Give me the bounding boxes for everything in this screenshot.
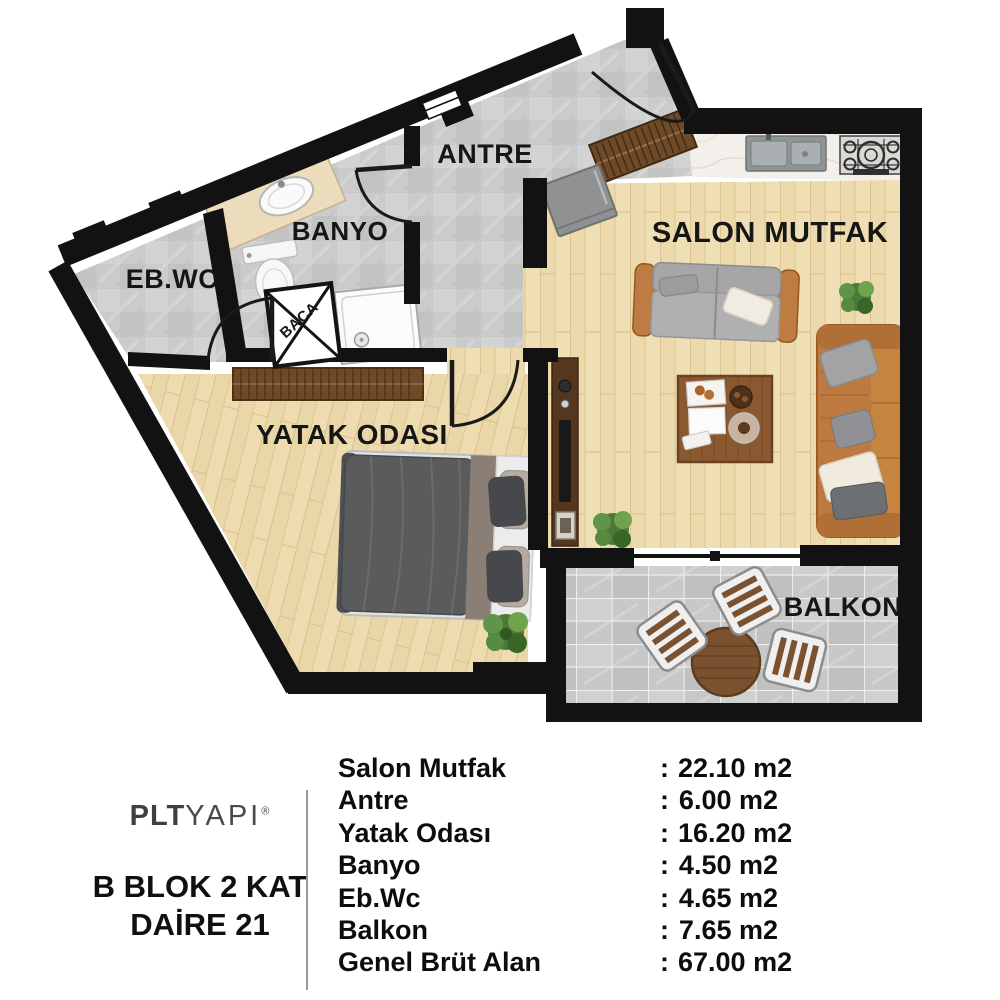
door-gap-wood-floor	[447, 348, 525, 374]
plant	[593, 511, 632, 548]
room-label-salon-mutfak: SALON MUTFAK	[652, 217, 888, 249]
room-label-yatak-odasi: YATAK ODASI	[256, 419, 448, 450]
bowl	[730, 386, 752, 408]
area-value: 67.00 m2	[678, 947, 778, 978]
area-value: 4.65 m2	[678, 883, 778, 914]
area-room-name: Eb.Wc	[338, 883, 660, 914]
legend: PLTYAPI® B BLOK 2 KAT DAİRE 21 Salon Mut…	[0, 740, 1000, 1000]
kitchen-sink	[746, 130, 826, 171]
room-label-eb-wc: EB.WC	[126, 264, 219, 294]
brand-bold: PLT	[130, 800, 186, 832]
tv	[559, 420, 571, 502]
area-row: Yatak Odası:16.20 m2	[338, 818, 798, 850]
area-row: Banyo:4.50 m2	[338, 850, 798, 882]
sofa-leather	[817, 325, 905, 537]
area-row: Eb.Wc:4.65 m2	[338, 883, 798, 915]
area-room-name: Balkon	[338, 915, 660, 946]
plant	[483, 612, 528, 653]
stove	[840, 136, 902, 175]
brand-light: YAPI	[185, 800, 261, 832]
room-label-antre: ANTRE	[437, 139, 533, 169]
area-row: Balkon:7.65 m2	[338, 915, 798, 947]
sofa-two-seat	[633, 261, 800, 342]
area-row: Antre:6.00 m2	[338, 785, 798, 817]
room-label-balkon: BALKON	[784, 592, 903, 622]
plant	[839, 281, 874, 314]
area-value: 16.20 m2	[678, 818, 778, 849]
area-value: 4.50 m2	[678, 850, 778, 881]
unit-block-floor: B BLOK 2 KAT	[62, 868, 338, 906]
floor-plan-page: SALON MUTFAK ANTRE BANYO EB.WC YATAK ODA…	[0, 0, 1000, 1000]
area-value: 7.65 m2	[678, 915, 778, 946]
room-label-banyo: BANYO	[292, 216, 388, 246]
legend-divider	[306, 790, 308, 990]
area-row: Salon Mutfak:22.10 m2	[338, 753, 798, 785]
area-row: Genel Brüt Alan:67.00 m2	[338, 947, 798, 979]
area-room-name: Genel Brüt Alan	[338, 947, 660, 978]
area-value: 22.10 m2	[678, 753, 778, 784]
area-room-name: Banyo	[338, 850, 660, 881]
dresser	[233, 368, 423, 400]
tv-unit	[552, 358, 578, 546]
unit-info: B BLOK 2 KAT DAİRE 21	[62, 868, 338, 944]
bed	[336, 451, 536, 622]
area-room-name: Antre	[338, 785, 660, 816]
floor-plan: SALON MUTFAK ANTRE BANYO EB.WC YATAK ODA…	[0, 0, 1000, 760]
unit-number: DAİRE 21	[62, 906, 338, 944]
registered-mark: ®	[261, 805, 270, 817]
coffee-table	[678, 376, 772, 462]
area-room-name: Salon Mutfak	[338, 753, 660, 784]
area-value: 6.00 m2	[678, 785, 778, 816]
area-room-name: Yatak Odası	[338, 818, 660, 849]
brand-logo: PLTYAPI®	[62, 800, 338, 833]
passage-wood-floor	[523, 266, 550, 362]
area-table: Salon Mutfak:22.10 m2 Antre:6.00 m2 Yata…	[338, 753, 798, 980]
balcony-chair	[762, 627, 827, 692]
